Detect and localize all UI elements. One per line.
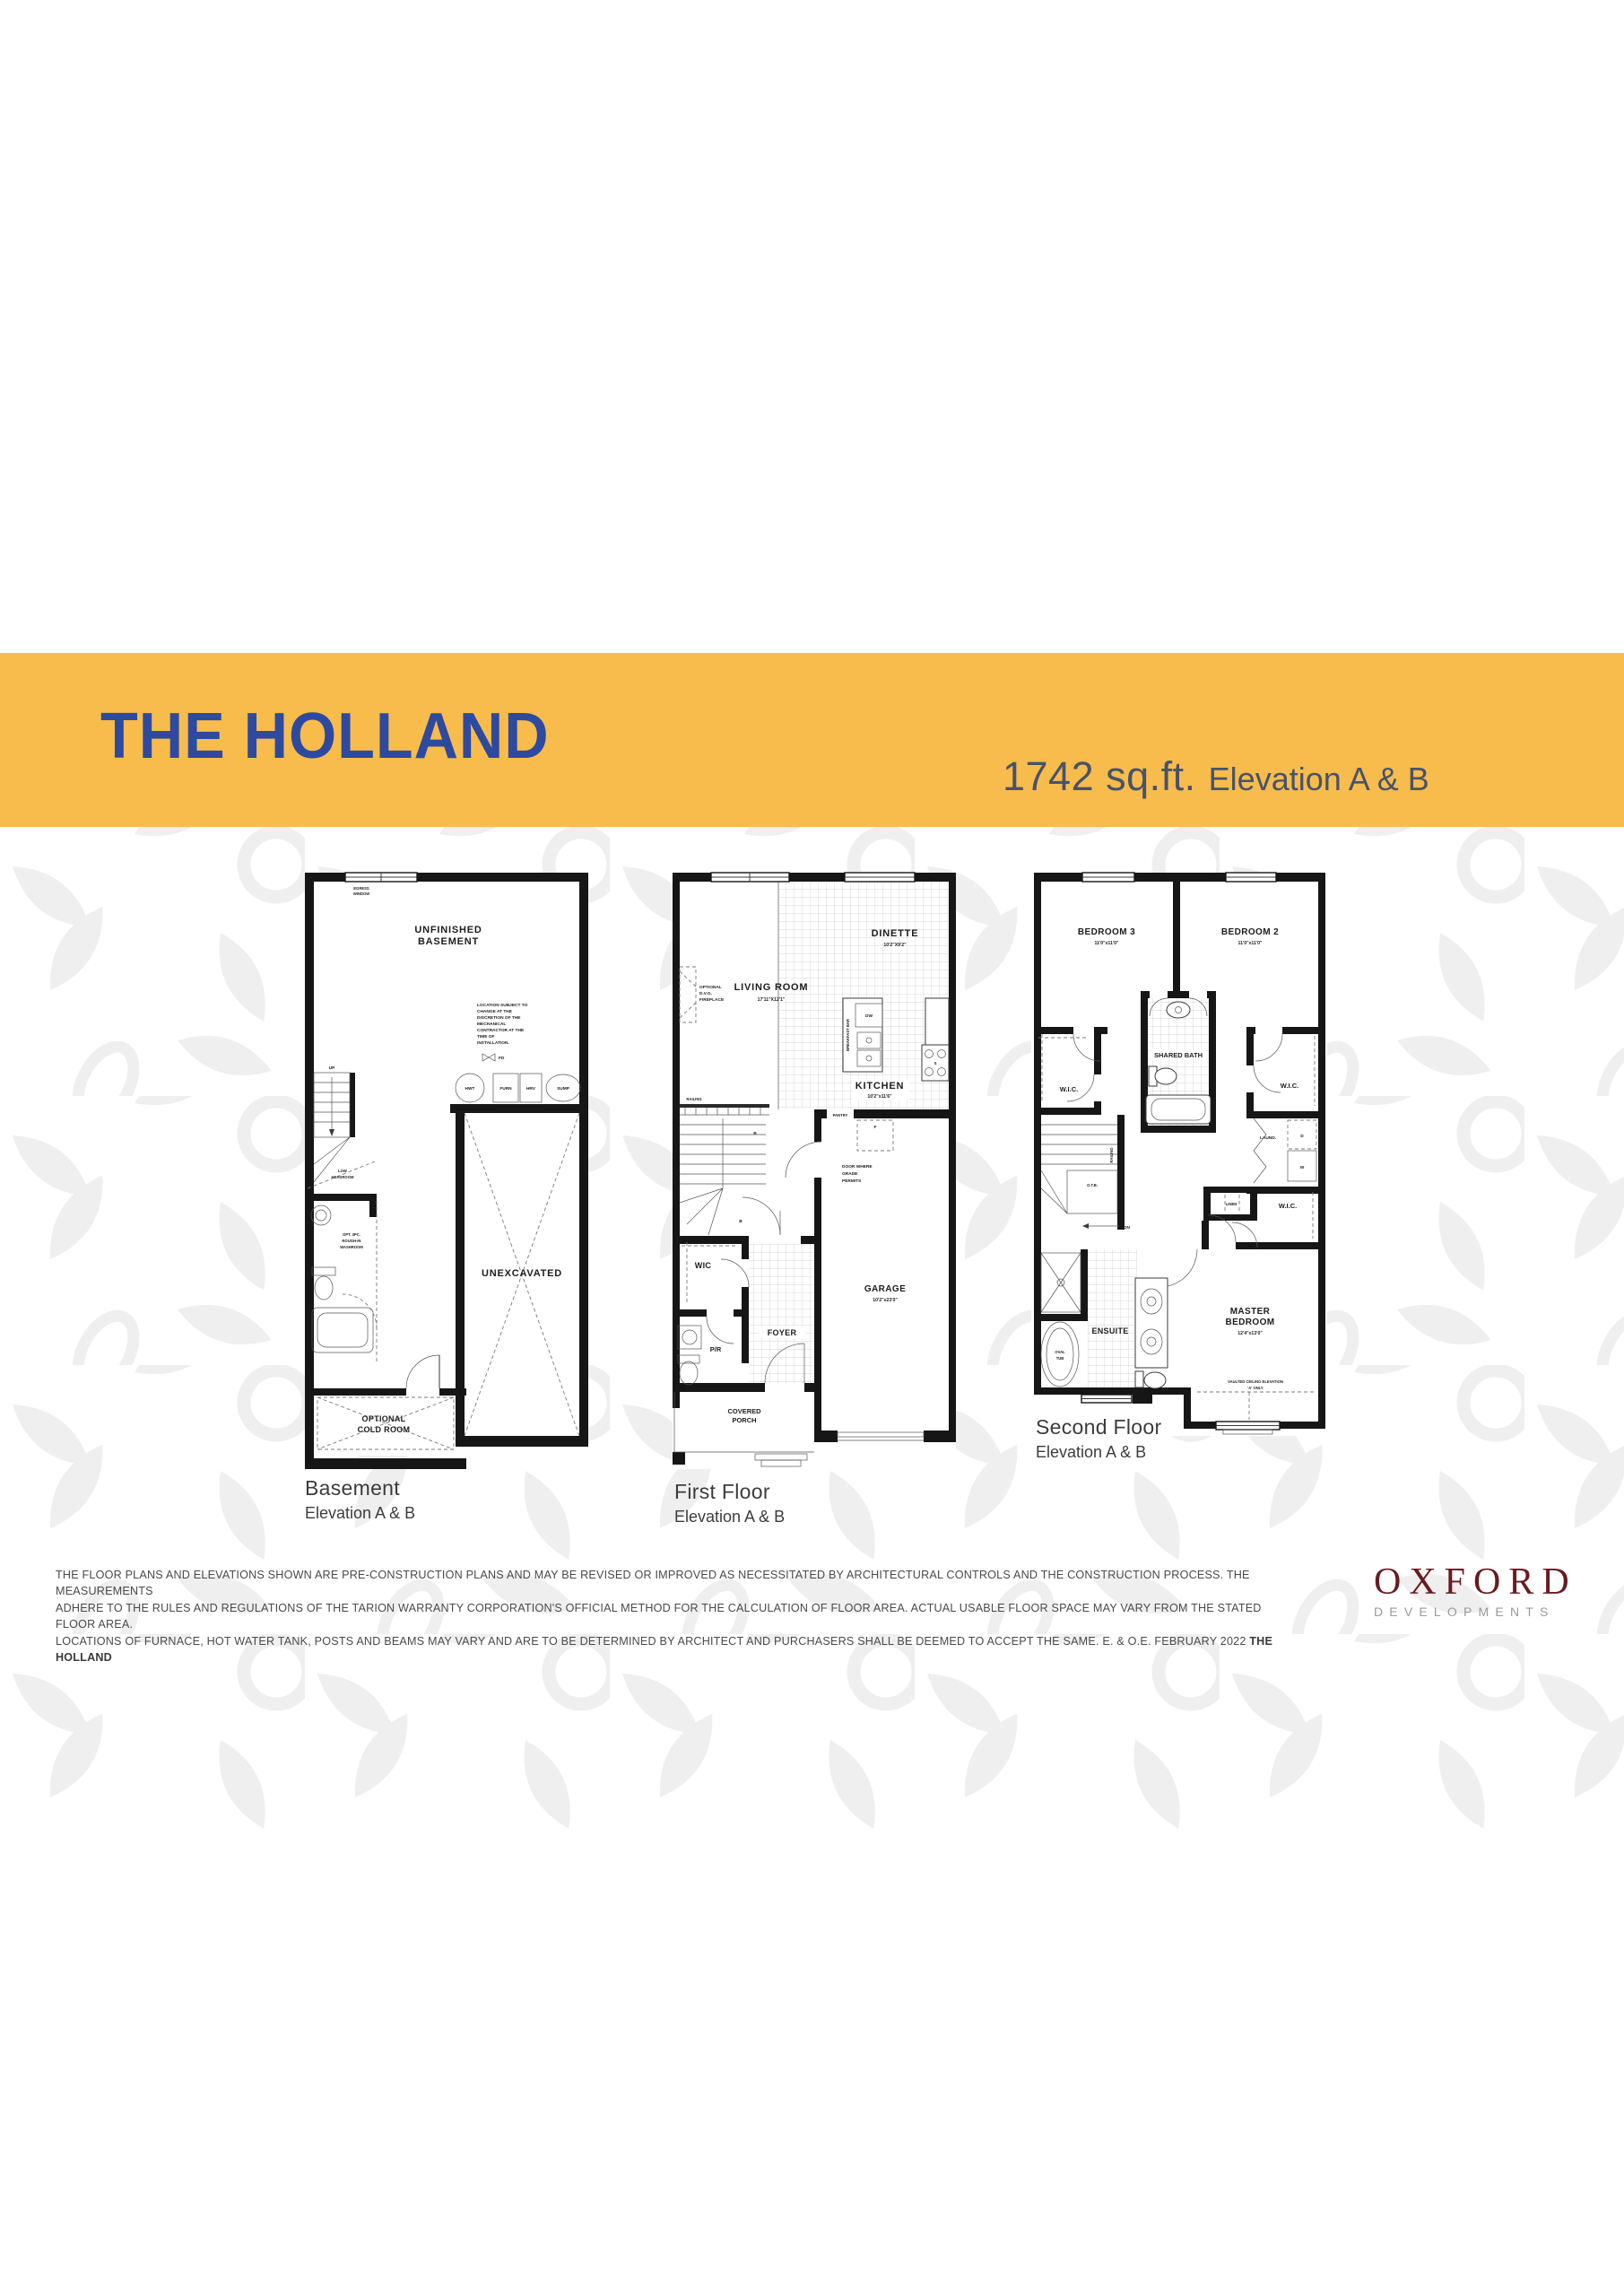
svg-text:WINDOW: WINDOW — [353, 891, 369, 896]
washer-label: W — [1300, 1165, 1305, 1170]
hrv-label: HRV — [526, 1086, 536, 1091]
floor-plan-sheet: THE HOLLAND 1742 sq.ft. Elevation A & B — [0, 0, 1624, 2296]
disclaimer-line-2: ADHERE TO THE RULES AND REGULATIONS OF T… — [56, 1600, 1304, 1633]
bedroom3-label: BEDROOM 3 — [1078, 927, 1135, 937]
svg-text:LOCATION SUBJECT TO: LOCATION SUBJECT TO — [477, 1003, 528, 1008]
living-room-label: LIVING ROOM — [734, 982, 809, 993]
wic-right-label: W.I.C. — [1281, 1082, 1298, 1090]
svg-text:FIREPLACE: FIREPLACE — [699, 997, 725, 1003]
svg-text:CHANGE AT THE: CHANGE AT THE — [477, 1009, 513, 1014]
svg-text:12'4"x13'0": 12'4"x13'0" — [1238, 1331, 1263, 1336]
oxford-developments-logo: OXFORD DEVELOPMENTS — [1374, 1561, 1577, 1619]
svg-text:MECHANICAL: MECHANICAL — [477, 1022, 506, 1027]
washroom-label: OPT. 3PC. ROUGH-IN WASHROOM — [340, 1232, 363, 1249]
svg-text:HEADROOM: HEADROOM — [332, 1175, 354, 1179]
svg-text:BASEMENT: BASEMENT — [418, 936, 479, 947]
svg-text:ROUGH-IN: ROUGH-IN — [342, 1239, 360, 1243]
disclaimer-text: THE FLOOR PLANS AND ELEVATIONS SHOWN ARE… — [56, 1567, 1304, 1665]
svg-text:F: F — [874, 1125, 877, 1130]
unexcavated-label: UNEXCAVATED — [482, 1268, 562, 1279]
svg-text:11'0"x11'0": 11'0"x11'0" — [1238, 941, 1263, 946]
low-headroom-label: LOW — [338, 1169, 347, 1173]
railing-label: RAILING — [686, 1097, 701, 1101]
cold-room-label: OPTIONAL — [362, 1414, 406, 1423]
svg-text:WASHROOM: WASHROOM — [340, 1245, 363, 1249]
hwt-label: HWT — [465, 1086, 475, 1091]
dn-label: DN — [1124, 1225, 1130, 1231]
wic-left-label: W.I.C. — [1060, 1085, 1078, 1093]
master-bedroom-label: MASTER — [1230, 1307, 1271, 1317]
first-floor-plan: DINETTE 10'2"X9'2" LIVING ROOM 17'11"X12… — [673, 873, 956, 1475]
developments-wordmark: DEVELOPMENTS — [1374, 1605, 1577, 1619]
dinette-label: DINETTE — [872, 928, 919, 939]
otb-label: O.T.B. — [1087, 1183, 1098, 1187]
svg-text:'A' ONLY: 'A' ONLY — [1247, 1386, 1264, 1390]
svg-text:17'11"X12'1": 17'11"X12'1" — [758, 997, 786, 1003]
wic-label: WIC — [695, 1261, 712, 1270]
svg-text:DISCRETION OF THE: DISCRETION OF THE — [477, 1015, 521, 1021]
dryer-label: D — [1300, 1134, 1304, 1139]
disclaimer-line-1: THE FLOOR PLANS AND ELEVATIONS SHOWN ARE… — [56, 1567, 1304, 1600]
stove-label: S — [934, 1061, 937, 1065]
egress-window — [345, 873, 417, 882]
first-floor-caption: First Floor Elevation A & B — [674, 1480, 785, 1526]
second-floor-plan: BEDROOM 3 11'0"x11'0" BEDROOM 2 11'0"x11… — [1031, 873, 1327, 1447]
breakfast-bar-label: BREAKFAST BAR — [846, 1019, 850, 1051]
second-floor-caption: Second Floor Elevation A & B — [1036, 1415, 1161, 1462]
svg-text:10'2"x11'6": 10'2"x11'6" — [867, 1094, 892, 1100]
svg-text:INSTALLATION.: INSTALLATION. — [477, 1040, 509, 1046]
furnace-label: FURN — [499, 1086, 512, 1091]
sump-label: SUMP — [557, 1086, 570, 1091]
page-title: THE HOLLAND — [100, 700, 550, 773]
kitchen-label: KITCHEN — [855, 1081, 905, 1091]
svg-text:TIME OF: TIME OF — [477, 1034, 495, 1039]
linen-label: LINEN — [1226, 1202, 1238, 1206]
pantry-label: PANTRY — [833, 1113, 848, 1118]
disclaimer-line-3: LOCATIONS OF FURNACE, HOT WATER TANK, PO… — [56, 1633, 1304, 1666]
stair-marker-b2: B — [739, 1219, 743, 1224]
egress-label: EGRESS — [353, 886, 369, 891]
svg-text:D.V.G.: D.V.G. — [699, 991, 712, 996]
laundry-label: LAUND. — [1260, 1135, 1276, 1141]
wic-master-label: W.I.C. — [1279, 1202, 1297, 1210]
svg-text:CONTRACTOR AT THE: CONTRACTOR AT THE — [477, 1028, 525, 1033]
shared-bath-label: SHARED BATH — [1154, 1051, 1203, 1059]
foyer-label: FOYER — [768, 1328, 797, 1337]
ensuite-tile — [1088, 1249, 1137, 1387]
kitchen-island: DW BREAKFAST BAR — [843, 998, 882, 1072]
basement-floor-plan: EGRESS WINDOW UNFINISHED BASEMENT LOCATI… — [305, 873, 588, 1472]
svg-text:DOOR WHERE: DOOR WHERE — [842, 1164, 873, 1170]
railing-label: RAILING — [1109, 1147, 1114, 1162]
elevation-label: Elevation A & B — [1209, 761, 1429, 798]
svg-text:BEDROOM: BEDROOM — [1225, 1318, 1274, 1327]
stair-marker-b: B — [753, 1131, 757, 1136]
svg-text:OPTIONAL: OPTIONAL — [699, 985, 722, 990]
kitchen-counter-stove: S — [922, 998, 949, 1081]
svg-text:PORCH: PORCH — [732, 1416, 756, 1424]
ensuite-label: ENSUITE — [1091, 1326, 1128, 1335]
bedroom2-label: BEDROOM 2 — [1221, 927, 1279, 937]
garage-label: GARAGE — [864, 1284, 906, 1294]
svg-text:FD: FD — [499, 1056, 505, 1061]
svg-text:10'2"X9'2": 10'2"X9'2" — [883, 943, 907, 948]
basement-caption: Basement Elevation A & B — [305, 1476, 415, 1523]
unfinished-basement-label: UNFINISHED — [414, 925, 482, 935]
sqft-label: 1742 sq.ft. — [1003, 753, 1196, 800]
oxford-wordmark: OXFORD — [1374, 1561, 1577, 1604]
svg-text:11'0"x11'0": 11'0"x11'0" — [1094, 941, 1119, 946]
porch-label: COVERED — [727, 1407, 761, 1415]
svg-text:PERMITS: PERMITS — [842, 1178, 862, 1184]
header-subtitle: 1742 sq.ft. Elevation A & B — [1003, 753, 1429, 800]
svg-text:OPT. 3PC.: OPT. 3PC. — [343, 1232, 360, 1237]
up-label: UP — [329, 1065, 335, 1071]
oval-tub-label: OVAL — [1055, 1350, 1065, 1354]
svg-text:GRADE: GRADE — [842, 1171, 858, 1177]
svg-text:10'2"x23'0": 10'2"x23'0" — [873, 1298, 898, 1303]
svg-text:TUB: TUB — [1056, 1356, 1064, 1361]
dishwasher-label: DW — [865, 1013, 873, 1019]
svg-text:COLD ROOM: COLD ROOM — [358, 1425, 411, 1434]
vaulted-ceiling-note: VAULTED CEILING ELEVATION — [1228, 1379, 1283, 1384]
powder-room-label: P/R — [710, 1345, 722, 1353]
